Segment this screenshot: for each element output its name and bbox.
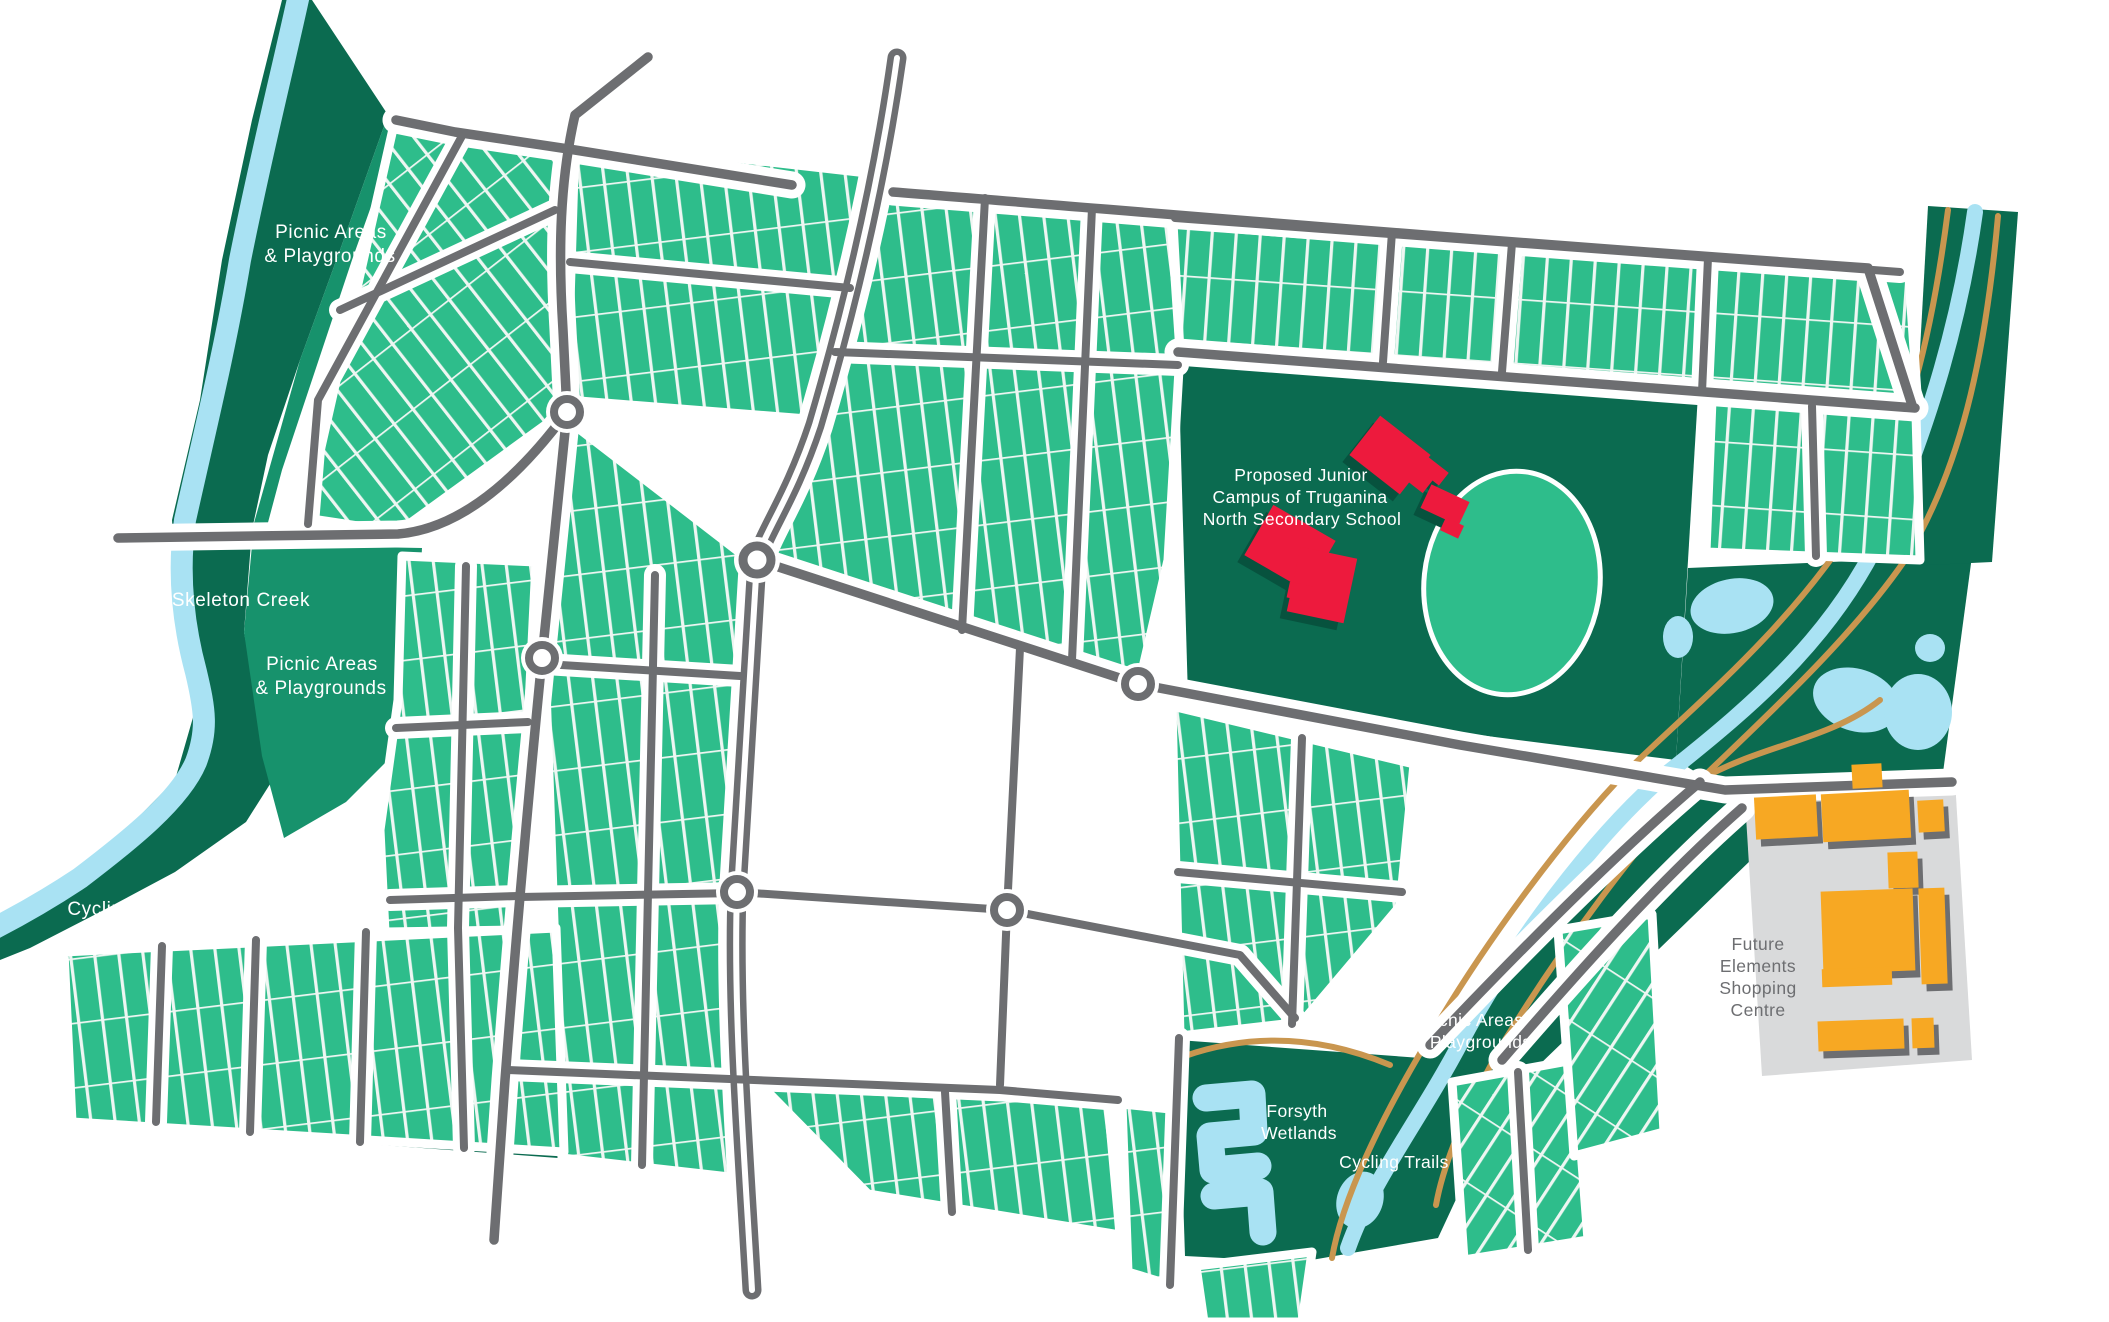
label-shopping-4: Centre xyxy=(1731,1000,1786,1020)
roundabout xyxy=(986,889,1028,931)
estate-masterplan-map: Picnic Areas & Playgrounds Skeleton Cree… xyxy=(0,0,2109,1322)
roundabout xyxy=(521,637,563,679)
label-forsyth-1: Forsyth xyxy=(1266,1101,1327,1121)
label-cycling-trails-se: Cycling Trails xyxy=(1339,1152,1449,1172)
label-picnic-areas-se: Picnic Areas xyxy=(1422,1010,1523,1030)
label-skeleton-creek: Skeleton Creek xyxy=(172,590,310,611)
label-school-2: Campus of Truganina xyxy=(1213,487,1388,507)
label-picnic-areas-nw: Picnic Areas xyxy=(275,222,387,243)
label-shopping-2: Elements xyxy=(1720,956,1796,976)
label-forsyth-2: Wetlands xyxy=(1261,1123,1337,1143)
label-picnic-areas-nw-2: & Playgrounds xyxy=(264,246,395,267)
roundabout xyxy=(1117,663,1159,705)
label-picnic-areas-w-2: & Playgrounds xyxy=(255,678,386,699)
roundabout xyxy=(546,391,588,433)
pond xyxy=(1915,634,1945,662)
label-school-3: North Secondary School xyxy=(1203,509,1402,529)
label-shopping-1: Future xyxy=(1732,934,1785,954)
forsyth-pond-shape xyxy=(1206,1094,1258,1170)
block-south-tail xyxy=(1196,1252,1312,1322)
roundabout xyxy=(734,537,780,583)
roundabout xyxy=(716,871,758,913)
pond xyxy=(1884,674,1952,750)
label-cycling-trails-w: Cycling Trails xyxy=(67,899,188,920)
label-picnic-areas-w: Picnic Areas xyxy=(266,654,378,675)
masterplan-svg: Picnic Areas & Playgrounds Skeleton Cree… xyxy=(0,0,2109,1322)
label-picnic-areas-se-2: & Playgrounds xyxy=(1412,1032,1531,1052)
label-school-1: Proposed Junior xyxy=(1234,465,1367,485)
pond xyxy=(1663,616,1693,658)
label-shopping-3: Shopping xyxy=(1719,978,1796,998)
